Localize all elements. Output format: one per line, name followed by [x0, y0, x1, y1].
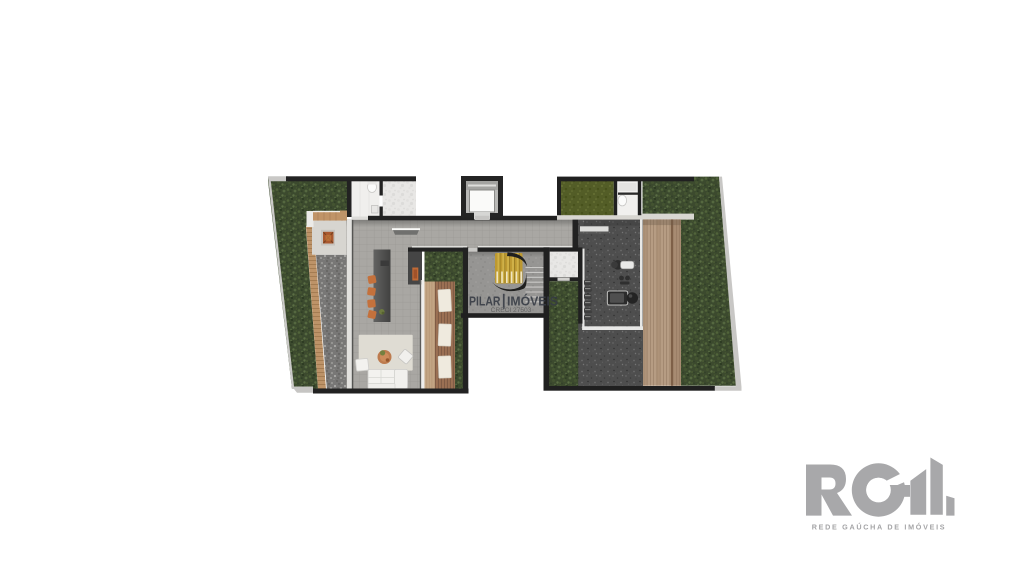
- svg-text:CRECI 27503: CRECI 27503: [491, 307, 532, 314]
- svg-text:REDE GAÚCHA DE IMÓVEIS: REDE GAÚCHA DE IMÓVEIS: [812, 523, 947, 532]
